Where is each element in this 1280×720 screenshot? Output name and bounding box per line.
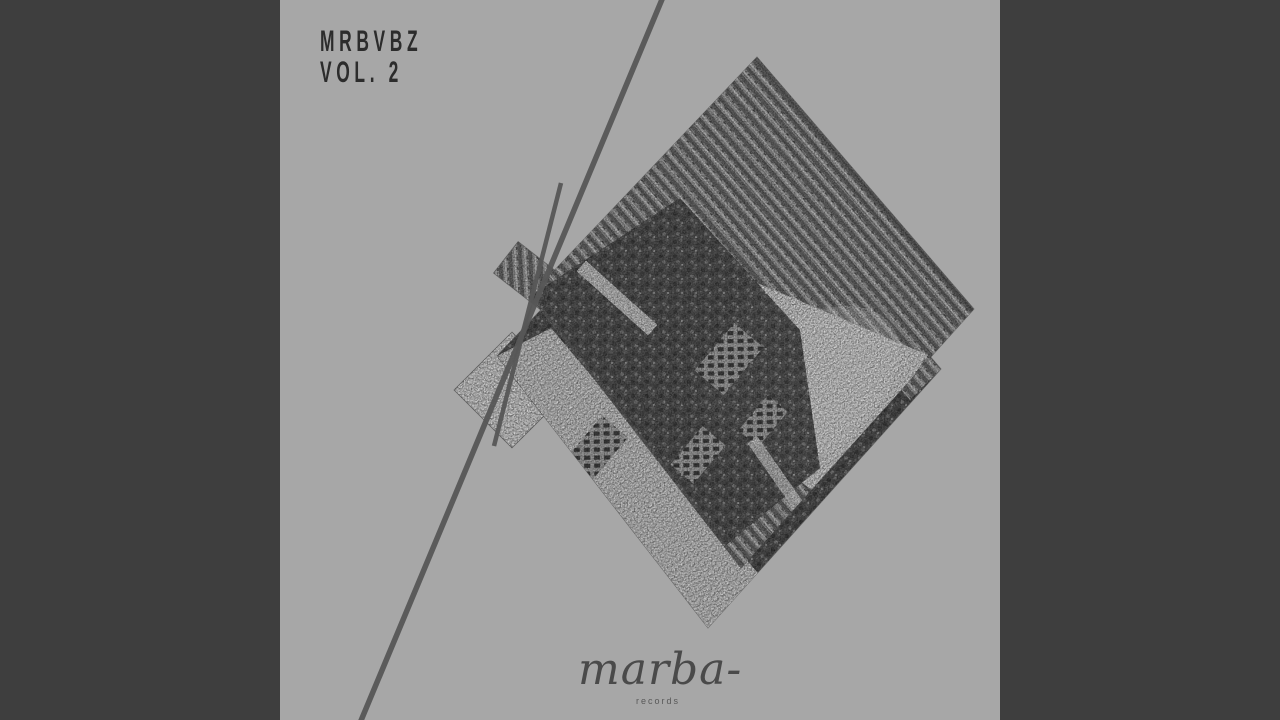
album-title: MRBVBZ VOL. 2 bbox=[320, 26, 422, 88]
record-label-name: marba- bbox=[578, 648, 742, 692]
record-label-sub: records bbox=[636, 696, 680, 706]
etching-grain-overlay bbox=[280, 0, 1000, 720]
album-cover: MRBVBZ VOL. 2 marba- records bbox=[280, 0, 1000, 720]
album-title-line1: MRBVBZ bbox=[320, 26, 422, 57]
left-letterbox-bar bbox=[0, 0, 280, 720]
right-letterbox-bar bbox=[1000, 0, 1280, 720]
record-label-logo: marba- records bbox=[576, 640, 736, 718]
video-frame: MRBVBZ VOL. 2 marba- records bbox=[0, 0, 1280, 720]
etching-artwork bbox=[280, 0, 1000, 720]
album-title-line2: VOL. 2 bbox=[320, 57, 422, 88]
